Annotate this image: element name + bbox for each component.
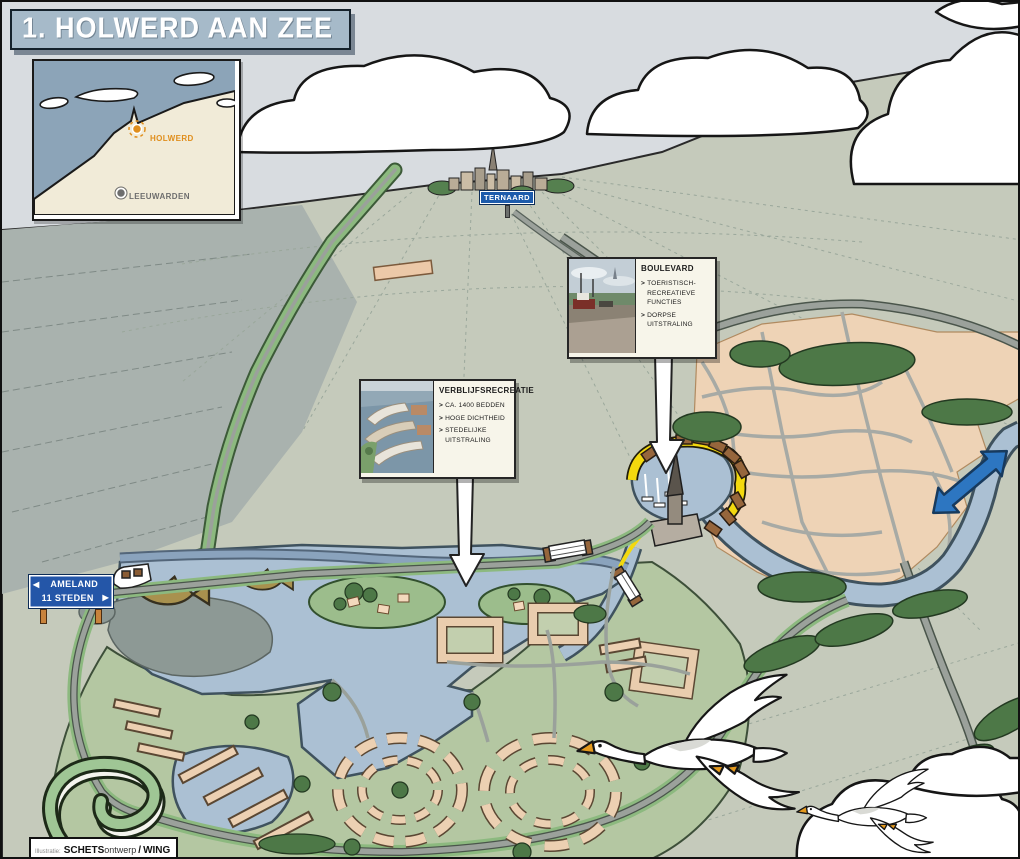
roadsign-ameland-line1: AMELAND xyxy=(50,578,98,592)
callout-boulevard: BOULEVARD > TOERISTISCH-RECREATIEVE FUNC… xyxy=(567,257,717,359)
credit-separator: / xyxy=(138,845,141,856)
page-title: 1. HOLWERD AAN ZEE xyxy=(22,12,333,45)
credit-partner: WING xyxy=(143,845,170,856)
credit-prefix: Illustratie: xyxy=(35,849,61,855)
signposts xyxy=(28,609,114,624)
callout-boulevard-text: BOULEVARD > TOERISTISCH-RECREATIEVE FUNC… xyxy=(636,259,715,357)
bullet-marker: > xyxy=(439,401,443,411)
arrow-right-icon: ▶ xyxy=(102,592,109,604)
bullet-marker: > xyxy=(439,414,443,424)
bullet-text: HOGE DICHTHEID xyxy=(445,414,505,424)
roadsign-ameland-plate: ◀ AMELAND 11 STEDEN ▶ xyxy=(28,574,114,609)
roadsign-ternaard-plate: TERNAARD xyxy=(479,190,535,205)
credit-brand-bold: SCHETS xyxy=(64,845,105,856)
title-banner: 1. HOLWERD AAN ZEE xyxy=(10,9,351,50)
callout-boulevard-bullets: > TOERISTISCH-RECREATIEVE FUNCTIES > DOR… xyxy=(641,279,711,330)
bullet-marker: > xyxy=(641,279,645,308)
callout-verblijfsrecreatie: VERBLIJFSRECREATIE > CA. 1400 BEDDEN > H… xyxy=(359,379,516,479)
callout-verblijfsrecreatie-bullets: > CA. 1400 BEDDEN > HOGE DICHTHEID > STE… xyxy=(439,401,534,445)
callout-verblijfsrecreatie-text: VERBLIJFSRECREATIE > CA. 1400 BEDDEN > H… xyxy=(434,381,538,477)
verblijfsrecreatie-photo xyxy=(361,381,434,473)
roadsign-ameland: ◀ AMELAND 11 STEDEN ▶ xyxy=(28,574,114,624)
bullet-text: CA. 1400 BEDDEN xyxy=(445,401,505,411)
roadsign-ameland-line2: 11 STEDEN xyxy=(42,592,94,606)
callout-boulevard-title: BOULEVARD xyxy=(641,264,711,273)
inset-label-leeuwarden: LEEUWARDEN xyxy=(129,192,190,201)
inset-label-holwerd: HOLWERD xyxy=(150,134,194,143)
credit-brand-light: ontwerp xyxy=(104,845,136,855)
bullet-marker: > xyxy=(641,311,645,330)
arrow-left-icon: ◀ xyxy=(33,579,40,591)
illustration-canvas: 1. HOLWERD AAN ZEE HOLWERD LEEUWARDEN TE… xyxy=(0,0,1020,859)
signpost xyxy=(505,205,510,218)
bullet-text: TOERISTISCH-RECREATIEVE FUNCTIES xyxy=(647,279,711,308)
bullet-text: DORPSE UITSTRALING xyxy=(647,311,711,330)
credit-box: Illustratie:SCHETSontwerp/WING xyxy=(29,837,178,859)
inset-location-map: HOLWERD LEEUWARDEN xyxy=(32,59,241,221)
bullet-marker: > xyxy=(439,426,443,445)
leeuwarden-marker xyxy=(115,187,127,199)
island-west xyxy=(309,576,445,628)
roadsign-ternaard: TERNAARD xyxy=(479,190,535,218)
boulevard-photo xyxy=(569,259,636,353)
bullet-text: STEDELIJKE UITSTRALING xyxy=(445,426,534,445)
callout-verblijfsrecreatie-title: VERBLIJFSRECREATIE xyxy=(439,386,534,395)
